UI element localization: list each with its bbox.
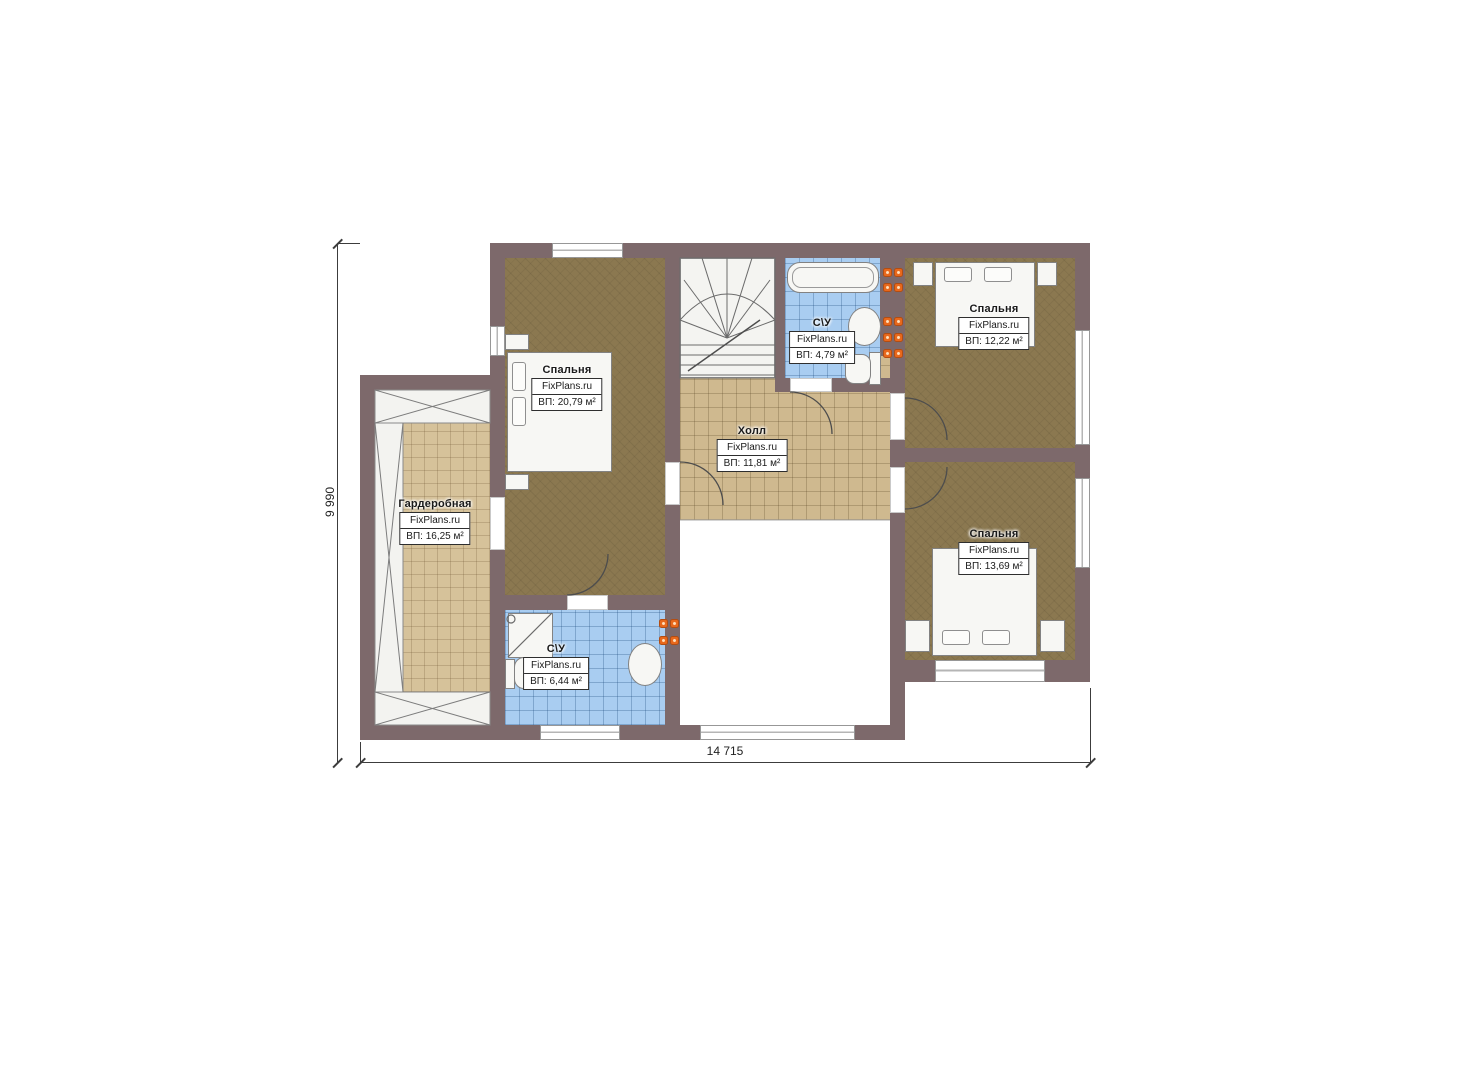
watermark-text: FixPlans.ru xyxy=(959,543,1028,559)
room-area: ВП: 20,79 м² xyxy=(532,395,601,410)
dimension-label-height: 9 990 xyxy=(323,487,337,517)
room-area: ВП: 4,79 м² xyxy=(790,348,854,363)
watermark-text: FixPlans.ru xyxy=(718,440,787,456)
door-arc-icon xyxy=(567,392,947,595)
room-name: Гардеробная xyxy=(398,498,471,510)
watermark-text: FixPlans.ru xyxy=(532,379,601,395)
room-area: ВП: 12,22 м² xyxy=(959,334,1028,349)
room-label-bedroom3: Спальня FixPlans.ru ВП: 13,69 м² xyxy=(958,528,1029,575)
dimension-label-width: 14 715 xyxy=(707,744,744,758)
room-area: ВП: 16,25 м² xyxy=(400,529,469,544)
room-name: С\У xyxy=(523,643,589,655)
room-name: С\У xyxy=(789,317,855,329)
room-name: Спальня xyxy=(531,364,602,376)
room-label-hall: Холл FixPlans.ru ВП: 11,81 м² xyxy=(717,425,788,472)
wardrobe-storage-icon xyxy=(375,390,490,725)
stairs-icon xyxy=(680,258,775,378)
watermark-text: FixPlans.ru xyxy=(790,332,854,348)
room-label-bath-bottom: С\У FixPlans.ru ВП: 6,44 м² xyxy=(523,643,589,690)
room-label-bedroom1: Спальня FixPlans.ru ВП: 20,79 м² xyxy=(531,364,602,411)
room-name: Спальня xyxy=(958,528,1029,540)
room-area: ВП: 11,81 м² xyxy=(718,456,787,471)
dimension-line-vertical xyxy=(337,243,338,762)
room-name: Холл xyxy=(717,425,788,437)
watermark-text: FixPlans.ru xyxy=(400,513,469,529)
room-name: Спальня xyxy=(958,303,1029,315)
room-area: ВП: 13,69 м² xyxy=(959,559,1028,574)
floor-plan-page: { "plan": { "type": "floor-plan", "rooms… xyxy=(0,0,1474,1080)
room-area: ВП: 6,44 м² xyxy=(524,674,588,689)
watermark-text: FixPlans.ru xyxy=(524,658,588,674)
room-label-bath-top: С\У FixPlans.ru ВП: 4,79 м² xyxy=(789,317,855,364)
watermark-text: FixPlans.ru xyxy=(959,318,1028,334)
room-label-bedroom2: Спальня FixPlans.ru ВП: 12,22 м² xyxy=(958,303,1029,350)
room-label-wardrobe: Гардеробная FixPlans.ru ВП: 16,25 м² xyxy=(398,498,471,545)
